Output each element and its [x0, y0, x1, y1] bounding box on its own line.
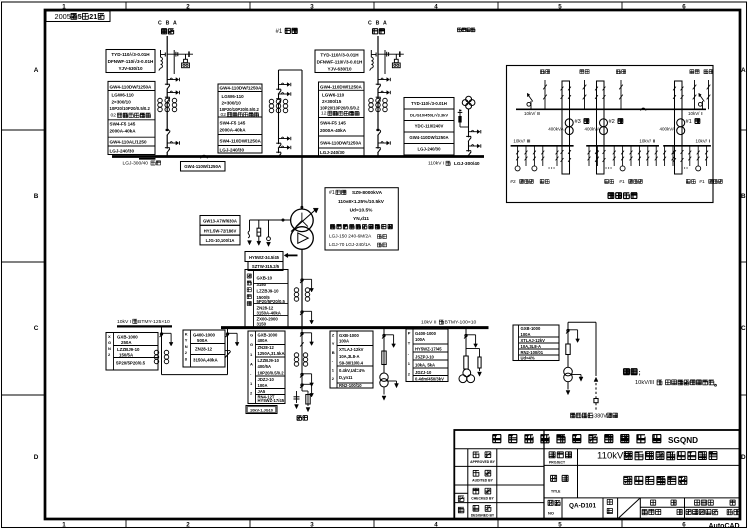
svg-text:LGJ-240/30: LGJ-240/30 [320, 150, 345, 155]
svg-text:LGJ-240/30: LGJ-240/30 [220, 148, 245, 153]
svg-text:II: II [653, 139, 655, 144]
svg-text:SW4-110DW/1250A: SW4-110DW/1250A [220, 139, 262, 144]
svg-text:02: 02 [111, 113, 117, 119]
svg-text:#3: #3 [575, 119, 581, 125]
svg-text:A: A [250, 362, 253, 367]
svg-text:TYD-110/√3-0.01H: TYD-110/√3-0.01H [320, 53, 359, 58]
svg-text:Y: Y [332, 341, 335, 346]
svg-text:JA5: JA5 [258, 389, 266, 394]
svg-text:400/5A: 400/5A [258, 364, 272, 369]
svg-text:5: 5 [78, 13, 82, 21]
svg-text:GXB-10: GXB-10 [257, 276, 273, 281]
svg-text:400kVA: 400kVA [548, 126, 563, 131]
svg-text:JDZJ-10: JDZJ-10 [258, 377, 275, 382]
svg-text:#1: #1 [686, 119, 692, 125]
svg-text:#2: #2 [609, 119, 615, 125]
svg-text:GW4-110AL/1250: GW4-110AL/1250 [110, 139, 147, 144]
svg-text:2: 2 [186, 521, 190, 528]
svg-text:10A,3L8-A: 10A,3L8-A [339, 354, 359, 359]
svg-text:CHECKED BY: CHECKED BY [471, 496, 494, 500]
svg-text:500A: 500A [197, 338, 208, 343]
svg-text:YN,d11: YN,d11 [353, 216, 369, 222]
svg-text:LGW6-110: LGW6-110 [222, 94, 245, 99]
svg-text:Y: Y [185, 338, 188, 343]
svg-text:LZZBJ9-10: LZZBJ9-10 [117, 347, 140, 352]
svg-text:10P20/0.5/0.2: 10P20/0.5/0.2 [258, 371, 285, 376]
svg-text:I: I [701, 111, 702, 116]
svg-text:250A: 250A [121, 340, 132, 345]
svg-text:BTMY-125×10: BTMY-125×10 [138, 319, 170, 325]
svg-text:P: P [408, 331, 411, 336]
svg-text:LGJ-300/40: LGJ-300/40 [454, 161, 480, 167]
svg-text:SGQND: SGQND [668, 436, 698, 445]
svg-text:3150: 3150 [257, 322, 267, 327]
svg-text:10kV II: 10kV II [421, 320, 437, 326]
svg-text:SW4-F5 145: SW4-F5 145 [320, 121, 346, 126]
svg-text:2005: 2005 [55, 12, 71, 21]
svg-text:A: A [34, 67, 39, 74]
svg-text:400kVA: 400kVA [660, 126, 675, 131]
svg-text:GXB-1000: GXB-1000 [521, 326, 541, 331]
svg-text:02: 02 [221, 112, 227, 118]
svg-text:ZN28-12: ZN28-12 [195, 347, 213, 352]
svg-text:D: D [34, 454, 39, 461]
svg-text:AutoCAD: AutoCAD [709, 523, 740, 530]
svg-text:3: 3 [310, 4, 314, 11]
svg-text:GXB-1000: GXB-1000 [117, 334, 138, 339]
svg-text:LJG-10,100/1A: LJG-10,100/1A [206, 238, 235, 243]
svg-text:2×300/10: 2×300/10 [112, 99, 132, 104]
svg-text:5: 5 [558, 521, 562, 528]
svg-text:A: A [741, 67, 746, 74]
svg-text:BTMY-100×10: BTMY-100×10 [445, 320, 477, 326]
svg-text:GW4-110W/1250A: GW4-110W/1250A [184, 164, 222, 169]
svg-text:K: K [185, 332, 188, 337]
svg-text:LZZBJ9-10: LZZBJ9-10 [258, 358, 280, 363]
svg-text:DFNWF-110/√3-0.01H: DFNWF-110/√3-0.01H [317, 60, 363, 65]
svg-text:G400-1000: G400-1000 [415, 331, 437, 336]
svg-text:10kA, 5kA: 10kA, 5kA [415, 363, 435, 368]
svg-text:5P20/5P20/0.5: 5P20/5P20/0.5 [257, 299, 286, 304]
svg-text:4: 4 [434, 521, 438, 528]
svg-text:2: 2 [186, 4, 190, 11]
svg-text:100A: 100A [415, 337, 425, 342]
svg-text:100A: 100A [521, 332, 531, 337]
svg-text:NO: NO [548, 511, 554, 516]
svg-text:APPROVED BY: APPROVED BY [470, 460, 495, 464]
svg-text:HY5WZ-34.5/45: HY5WZ-34.5/45 [249, 255, 280, 260]
svg-text:10kV/: 10kV/ [696, 139, 708, 144]
svg-text:LGJ-240/30: LGJ-240/30 [110, 148, 135, 153]
svg-text:100A: 100A [258, 383, 268, 388]
svg-text:D,yn11: D,yn11 [339, 375, 353, 380]
svg-text:10kV/: 10kV/ [639, 139, 651, 144]
svg-text:TITLE: TITLE [551, 489, 561, 493]
svg-text:10P20/10P20/0.5/0.2: 10P20/10P20/0.5/0.2 [110, 106, 151, 111]
svg-text:HY5WZ-17/45: HY5WZ-17/45 [415, 347, 442, 352]
svg-text:3150A,40kA: 3150A,40kA [193, 358, 218, 363]
svg-text:GW13-A7W/630A: GW13-A7W/630A [203, 219, 237, 224]
svg-text:G400-1000: G400-1000 [193, 332, 216, 337]
svg-text:GW4-110DW/1250A: GW4-110DW/1250A [320, 84, 363, 89]
svg-text:LGW6-110: LGW6-110 [322, 93, 345, 98]
svg-text:SZTW-315.2/5: SZTW-315.2/5 [252, 264, 280, 269]
svg-text:#1: #1 [699, 179, 705, 185]
svg-text:B: B [34, 193, 39, 200]
svg-text:10kV-1.JG10: 10kV-1.JG10 [250, 407, 273, 412]
svg-text:YDC-110/240V: YDC-110/240V [415, 124, 444, 129]
svg-text:DESIGNED BY: DESIGNED BY [471, 514, 495, 518]
svg-text:SZ9-8000kVA: SZ9-8000kVA [352, 190, 383, 196]
svg-text:GW4-110DW/1250A: GW4-110DW/1250A [110, 84, 153, 89]
svg-text:5: 5 [558, 4, 562, 11]
svg-text:DFNWF-110/√3-0.01H: DFNWF-110/√3-0.01H [108, 59, 154, 64]
svg-text:400kVA: 400kVA [585, 126, 600, 131]
svg-text:AUDITED BY: AUDITED BY [472, 478, 493, 482]
svg-text:2000A-40kA: 2000A-40kA [220, 128, 247, 133]
svg-text:II: II [537, 111, 539, 116]
svg-text:G: G [108, 340, 111, 345]
svg-text:QA-D101: QA-D101 [569, 503, 596, 510]
svg-text:Ud=10.5%: Ud=10.5% [350, 208, 374, 214]
svg-text:N: N [185, 344, 188, 349]
svg-text:10kV/: 10kV/ [524, 111, 536, 116]
svg-text:6: 6 [682, 521, 686, 528]
svg-text:HY5WZ-17/45: HY5WZ-17/45 [258, 398, 285, 403]
svg-text:LGJ-150 240-6M/2A: LGJ-150 240-6M/2A [329, 234, 372, 239]
svg-text:GW4-110DW/1250A: GW4-110DW/1250A [220, 86, 263, 91]
svg-text:XTLAJ-12kV: XTLAJ-12kV [339, 347, 364, 352]
svg-text:LGW6-110: LGW6-110 [112, 92, 135, 97]
svg-text:12: 12 [321, 111, 327, 117]
svg-text:B: B [332, 350, 335, 355]
svg-text:Ud=4%: Ud=4% [521, 356, 535, 361]
svg-text:YJV-630/10: YJV-630/10 [327, 67, 351, 72]
svg-text:150/5A: 150/5A [119, 353, 134, 358]
svg-text:JSZPJ-10: JSZPJ-10 [415, 355, 435, 360]
svg-text:10kV I: 10kV I [117, 319, 131, 325]
svg-text:2000A-40kA: 2000A-40kA [320, 128, 347, 133]
svg-text:SW4-F5 145: SW4-F5 145 [220, 121, 246, 126]
svg-text:110±8×1.25%/10.5kV: 110±8×1.25%/10.5kV [338, 199, 385, 205]
svg-text:I: I [709, 139, 710, 144]
svg-text:6: 6 [682, 4, 686, 11]
svg-text:10kV/: 10kV/ [513, 139, 525, 144]
svg-text:HY1.5W-72/186V: HY1.5W-72/186V [204, 228, 237, 233]
svg-text:TYD-110/√3-0.01H: TYD-110/√3-0.01H [411, 101, 447, 106]
svg-text:#1: #1 [329, 190, 335, 196]
svg-text:1: 1 [62, 4, 66, 11]
svg-text:LGJ-70 LGJ-240/1A: LGJ-70 LGJ-240/1A [329, 242, 372, 247]
svg-text:10kV/III: 10kV/III [635, 380, 655, 386]
svg-text:B: B [741, 193, 746, 200]
svg-text:GXB-1000: GXB-1000 [339, 333, 359, 338]
svg-text:ZN28-12: ZN28-12 [258, 345, 275, 350]
svg-text:DL/G10/450L/√3.3kV: DL/G10/450L/√3.3kV [410, 112, 448, 117]
svg-text:TYD-110/√3-0.01H: TYD-110/√3-0.01H [111, 52, 150, 57]
svg-text:LZZBJ9-10: LZZBJ9-10 [257, 289, 280, 294]
svg-text:5P20/5P20/0.5: 5P20/5P20/0.5 [116, 361, 146, 366]
svg-text:III: III [527, 139, 531, 144]
svg-text:GXB-1000: GXB-1000 [258, 333, 278, 338]
svg-text:D: D [741, 454, 746, 461]
svg-text:3150: 3150 [257, 282, 267, 287]
svg-text:G: G [250, 333, 253, 338]
svg-text:380V: 380V [594, 413, 607, 419]
svg-text:10A,3L8-A: 10A,3L8-A [521, 344, 541, 349]
svg-text:X: X [108, 334, 111, 339]
svg-text:2000A-40kA: 2000A-40kA [110, 128, 137, 133]
svg-text:C B A: C B A [158, 21, 178, 27]
svg-text:10P20/10P20/0.5/0.2: 10P20/10P20/0.5/0.2 [320, 106, 360, 111]
svg-text:YJV-630/10: YJV-630/10 [118, 66, 142, 71]
svg-text:PROJECT: PROJECT [549, 461, 566, 465]
svg-text:0.4kV,Ud=4%: 0.4kV,Ud=4% [339, 368, 365, 373]
svg-text:1250A,31.5kA: 1250A,31.5kA [258, 351, 285, 356]
svg-text:LGJ-240/30: LGJ-240/30 [418, 147, 442, 152]
svg-text:GW4-110DW/1250A: GW4-110DW/1250A [409, 135, 448, 140]
svg-text:RN2-100/10: RN2-100/10 [339, 383, 362, 388]
svg-text:2×300/15: 2×300/15 [322, 99, 342, 104]
svg-text:RN2-100/01: RN2-100/01 [521, 350, 544, 355]
svg-text:C: C [34, 325, 39, 332]
svg-text:110kV I: 110kV I [428, 161, 444, 167]
svg-text:LGJ-300/40: LGJ-300/40 [123, 160, 149, 166]
svg-text:SW4-110DW/1250A: SW4-110DW/1250A [320, 141, 362, 146]
svg-text:#1: #1 [276, 28, 283, 35]
svg-text:SW4-F5 145: SW4-F5 145 [110, 121, 136, 126]
svg-text:400A: 400A [258, 338, 268, 343]
svg-text:N: N [108, 346, 111, 351]
svg-text:0.4dm/450/3kV: 0.4dm/450/3kV [415, 377, 444, 382]
svg-text:2×300/10: 2×300/10 [222, 101, 242, 106]
svg-text:110kV: 110kV [597, 451, 624, 462]
svg-text:100A: 100A [339, 339, 349, 344]
svg-text:XTLAJ-12kV: XTLAJ-12kV [521, 338, 546, 343]
svg-text:10kV/: 10kV/ [688, 111, 700, 116]
svg-text:10P20/10P20/0.5/0.2: 10P20/10P20/0.5/0.2 [220, 107, 260, 112]
svg-text:3150A-40kA: 3150A-40kA [257, 311, 281, 316]
svg-text:JDZJ-10: JDZJ-10 [415, 370, 432, 375]
svg-text:#2: #2 [510, 179, 516, 185]
svg-text:;: ; [639, 369, 641, 376]
svg-text:1: 1 [62, 521, 66, 528]
svg-text:#1: #1 [619, 179, 625, 185]
svg-text:21: 21 [89, 13, 97, 21]
svg-text:C: C [741, 325, 746, 332]
svg-text:3: 3 [310, 521, 314, 528]
svg-text:4: 4 [434, 4, 438, 11]
svg-text:S9-30/10/0.4: S9-30/10/0.4 [339, 361, 364, 366]
svg-text:G: G [250, 342, 253, 347]
svg-text:C B A: C B A [368, 21, 388, 27]
